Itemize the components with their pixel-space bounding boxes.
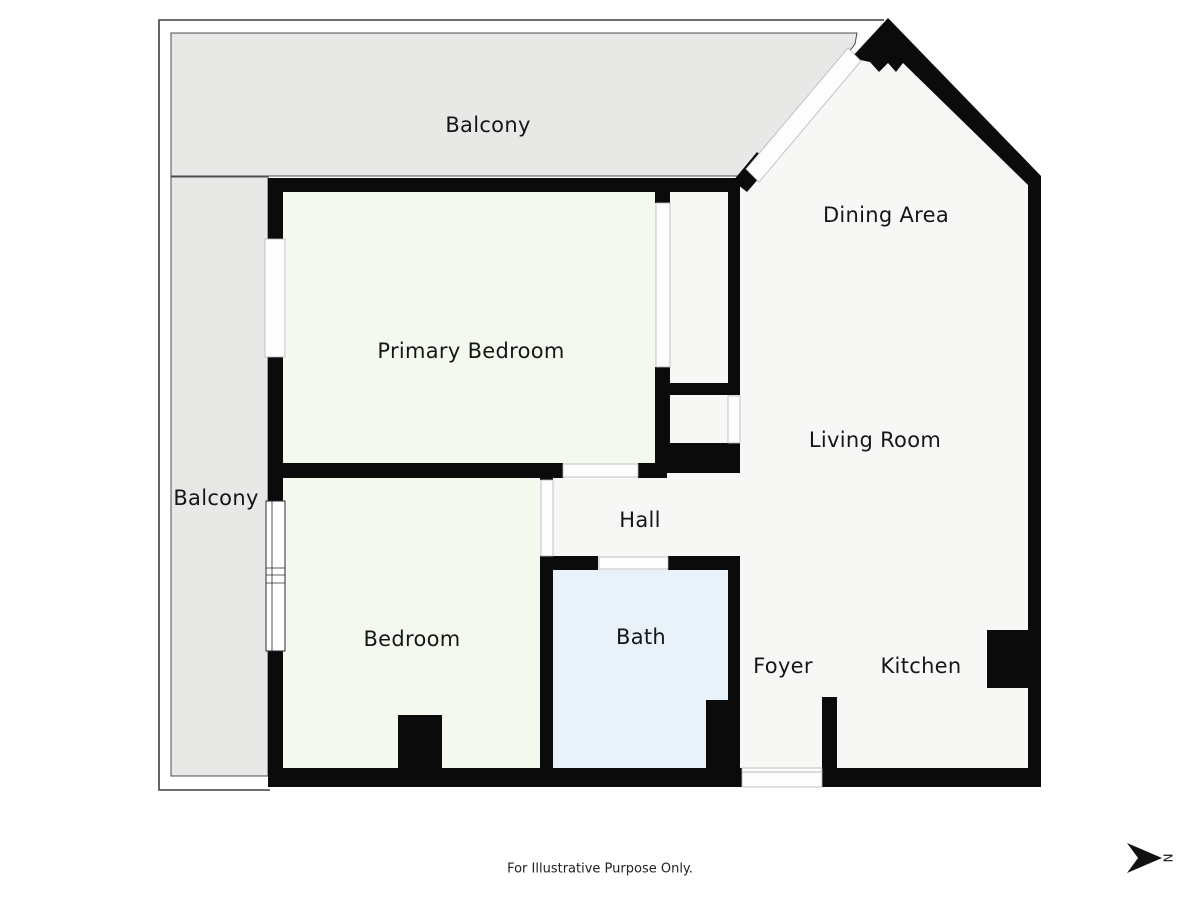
bath-floor (553, 570, 728, 768)
room-label-hall: Hall (619, 508, 661, 532)
wall-top (268, 178, 740, 192)
primary-closet-opening (656, 203, 670, 367)
north-label: N (1161, 854, 1175, 863)
bedroom-right-wall (540, 556, 553, 768)
balcony-left-area (171, 177, 268, 776)
bedroom-window-frame (266, 501, 285, 651)
north-arrow-icon (1127, 843, 1162, 873)
floorplan-canvas: N Balcony Dining Area Primary Bedroom Li… (0, 0, 1200, 900)
disclaimer-text: For Illustrative Purpose Only. (507, 862, 693, 877)
bedroom-wall-top-stub (540, 463, 553, 480)
wall-left-seg2 (268, 357, 283, 463)
room-label-foyer: Foyer (753, 654, 813, 678)
bath-pillar (706, 700, 740, 768)
wall-bottom-left (268, 768, 742, 787)
wall-left-seg1 (268, 178, 283, 239)
room-label-bath: Bath (616, 625, 666, 649)
room-label-dining-area: Dining Area (823, 203, 949, 227)
primary-right-wall-lower (655, 367, 670, 463)
wall-right (1028, 176, 1041, 787)
bedroom-window (266, 501, 285, 651)
compass: N (1127, 843, 1175, 873)
room-label-bedroom: Bedroom (363, 627, 460, 651)
primary-door-gap (563, 464, 638, 477)
primary-bedroom-floor (283, 192, 655, 463)
room-label-kitchen: Kitchen (880, 654, 961, 678)
wall-left-seg4 (268, 651, 283, 787)
entry-door-gap (742, 768, 822, 787)
room-label-balcony-left: Balcony (173, 486, 258, 510)
bath-top-wall-left (540, 556, 598, 570)
bedroom-door-gap (541, 480, 553, 556)
balcony-top-area (171, 33, 857, 176)
hall-living-gap (728, 396, 740, 443)
kitchen-pillar (987, 630, 1028, 688)
primary-right-wall-stub (655, 192, 670, 203)
floorplan-drawing: N (0, 0, 1200, 900)
bedroom-bottom-stub (398, 715, 442, 768)
bath-right-wall (728, 556, 740, 706)
room-label-balcony-top: Balcony (445, 113, 530, 137)
bath-door-gap (599, 557, 668, 569)
room-label-living-room: Living Room (809, 428, 941, 452)
wall-bottom-right (822, 768, 1041, 787)
foyer-kitchen-stub (822, 697, 837, 768)
hall-right-wall (728, 178, 740, 395)
room-label-primary-bedroom: Primary Bedroom (377, 339, 564, 363)
closet-bottom-wall (655, 383, 735, 395)
primary-balcony-door (265, 239, 285, 357)
wall-divider-right-bit (638, 463, 667, 478)
wall-thick-block (667, 443, 740, 473)
wall-bedroom-divider (268, 463, 563, 478)
